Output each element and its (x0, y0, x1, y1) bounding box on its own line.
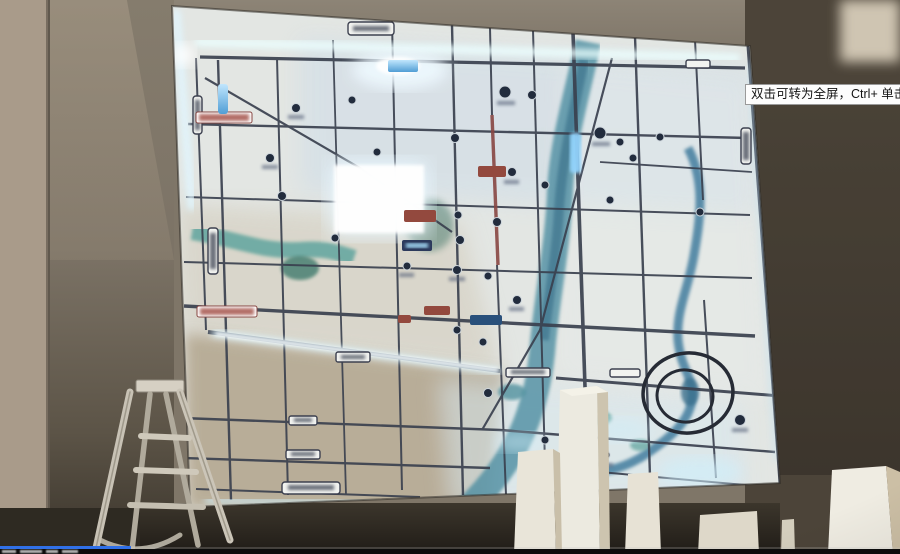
player-bar-text-smudge (46, 550, 58, 553)
video-player-frame[interactable]: 双击可转为全屏，Ctrl+ 单击可转为 (0, 0, 900, 554)
player-bar-text-smudge (2, 550, 16, 553)
map-board (171, 6, 780, 512)
player-bar-text-smudge (20, 550, 42, 553)
player-control-bar[interactable] (0, 549, 900, 554)
fullscreen-tooltip: 双击可转为全屏，Ctrl+ 单击可转为 (745, 84, 900, 105)
player-bar-text-smudge (62, 550, 78, 553)
fullscreen-tooltip-text: 双击可转为全屏，Ctrl+ 单击可转为 (751, 87, 900, 101)
